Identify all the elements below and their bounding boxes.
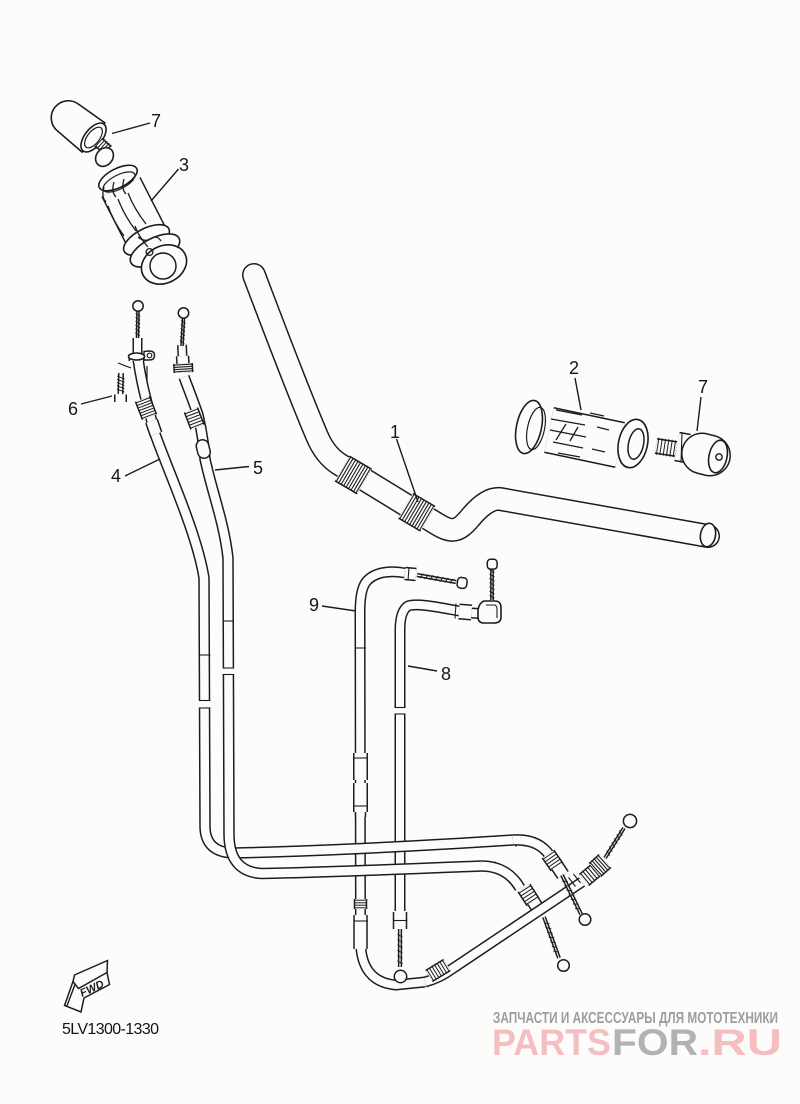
svg-text:7: 7	[151, 111, 161, 131]
svg-text:FOR: FOR	[612, 1022, 698, 1063]
svg-text:4: 4	[111, 466, 121, 486]
svg-text:.RU: .RU	[698, 1022, 782, 1063]
svg-text:5LV1300-1330: 5LV1300-1330	[62, 1021, 159, 1038]
svg-text:6: 6	[68, 399, 78, 419]
svg-text:7: 7	[698, 377, 708, 397]
svg-text:5: 5	[253, 458, 263, 478]
svg-text:1: 1	[390, 422, 400, 442]
svg-text:9: 9	[309, 595, 319, 615]
svg-text:2: 2	[569, 358, 579, 378]
svg-text:8: 8	[441, 664, 451, 684]
svg-text:3: 3	[179, 155, 189, 175]
svg-text:PARTS: PARTS	[492, 1022, 611, 1063]
